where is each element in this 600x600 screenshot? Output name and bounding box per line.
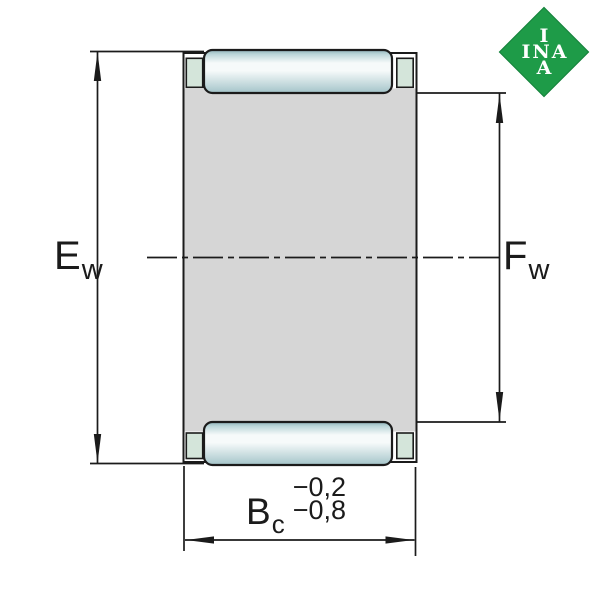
- fw-arrow-up-icon: [496, 94, 503, 123]
- bc-label-subscript: c: [272, 511, 285, 537]
- cage-pocket-top-right: [397, 58, 413, 87]
- ew-label-base: E: [54, 236, 81, 276]
- ew-dimension-label: Ew: [54, 236, 103, 276]
- cage-pocket-bottom-right: [397, 433, 413, 459]
- fw-label-subscript: w: [528, 256, 549, 285]
- cage-pocket-bottom-left: [186, 433, 202, 459]
- bc-tolerance-lower: −0,8: [293, 499, 346, 522]
- bc-dimension-label: Bc −0,2 −0,8: [246, 476, 346, 530]
- cage-body-section-fill: [185, 89, 416, 432]
- needle-roller-top: [204, 50, 392, 93]
- fw-arrow-down-icon: [496, 392, 503, 421]
- fw-dimension-label: Fw: [503, 236, 549, 276]
- cage-pocket-top-left: [186, 58, 202, 87]
- ina-logo-row-bottom: A: [537, 60, 552, 76]
- bc-label-main: Bc: [246, 493, 285, 530]
- bc-tolerance-block: −0,2 −0,8: [293, 476, 346, 522]
- bc-arrow-left-icon: [186, 536, 214, 543]
- bc-label-base: B: [246, 493, 271, 530]
- ina-logo-text: I INA A: [513, 21, 575, 83]
- fw-label-base: F: [503, 236, 527, 276]
- ew-label-subscript: w: [82, 256, 103, 285]
- ew-arrow-up-icon: [94, 52, 101, 81]
- screenshot-canvas: Ew Fw Bc −0,2 −0,8 I INA A: [0, 0, 600, 600]
- ew-arrow-down-icon: [94, 434, 101, 463]
- needle-roller-bottom: [204, 422, 392, 465]
- bc-arrow-right-icon: [386, 536, 414, 543]
